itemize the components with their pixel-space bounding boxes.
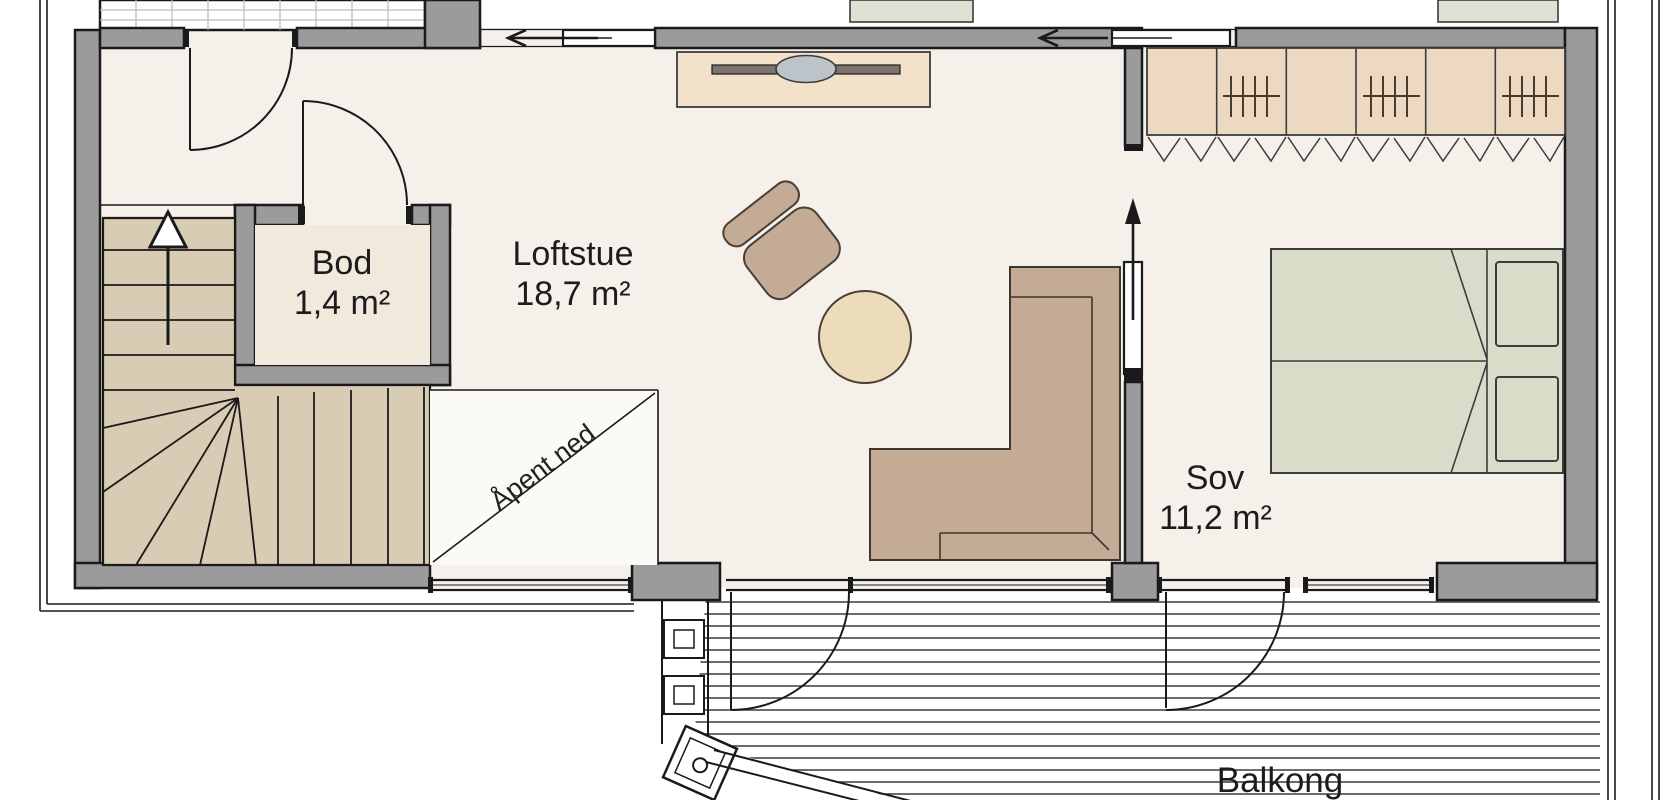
balcony-label: Balkong	[1190, 761, 1370, 800]
floor-plan-drawing	[0, 0, 1670, 800]
sov-balcony-door	[1166, 592, 1284, 710]
loftstue-balcony-door	[731, 592, 849, 710]
door-swing-arc	[731, 592, 849, 710]
room-label-bod: Bod	[277, 246, 407, 280]
tv-base	[776, 56, 836, 83]
room-area-sov: 11,2 m²	[1138, 501, 1293, 535]
balcony-deck	[694, 602, 1600, 794]
room-label-loftstue: Loftstue	[488, 237, 658, 271]
pillow	[1496, 262, 1558, 346]
door-swing-arc	[1166, 592, 1284, 710]
glass-grid-window	[100, 0, 425, 30]
outside-planter	[850, 0, 973, 22]
right-edge-railing-lines	[1608, 0, 1659, 800]
room-label-sov: Sov	[1150, 461, 1280, 495]
room-area-bod: 1,4 m²	[277, 286, 407, 320]
pillow	[1496, 377, 1558, 461]
double-bed	[1271, 249, 1563, 473]
railing-post	[664, 676, 704, 714]
outside-planter	[1438, 0, 1558, 22]
railing-post	[664, 620, 704, 658]
coffee-table	[819, 291, 911, 383]
floor-plan-page: Bod 1,4 m² Loftstue 18,7 m² Sov 11,2 m² …	[0, 0, 1670, 800]
room-area-loftstue: 18,7 m²	[488, 277, 658, 311]
railing-corner-post	[663, 726, 737, 800]
tv-cabinet	[677, 52, 930, 107]
